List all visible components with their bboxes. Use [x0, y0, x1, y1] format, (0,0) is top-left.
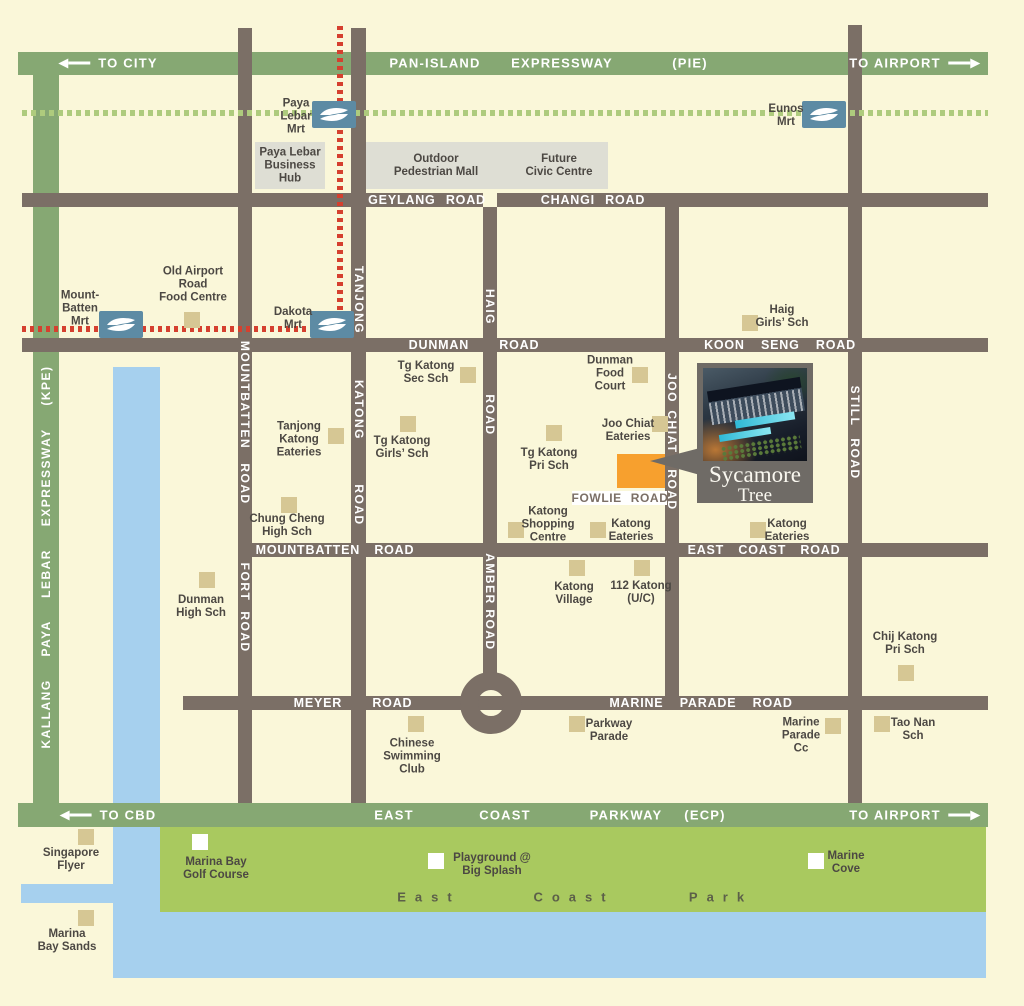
civic-centre-label: Future Civic Centre: [525, 153, 592, 179]
mountbatten-v-word1: MOUNTBATTEN: [238, 341, 252, 449]
parkway-parade-label: Parkway Parade: [586, 718, 633, 744]
pie-abbr-label: (PIE): [672, 56, 708, 71]
marine-cove-marker: [808, 853, 824, 869]
katong-eateries-west-marker: [590, 522, 606, 538]
mrt-circle-line-vertical: [337, 26, 343, 331]
tanjong-katong-word3: ROAD: [352, 484, 366, 525]
marine-parade-road-label: MARINE PARADE ROAD: [609, 696, 792, 710]
meyer-road-label: MEYER ROAD: [294, 696, 413, 710]
amber-word2: ROAD: [483, 609, 497, 650]
ecp-to-cbd-label: TO CBD: [60, 808, 157, 823]
tg-katong-pri-sch-label: Tg Katong Pri Sch: [521, 447, 578, 473]
tanjong-katong-eateries-marker: [328, 428, 344, 444]
pie-to-city-label: TO CITY: [58, 56, 157, 71]
sycamore-tree-name: Sycamore Tree: [697, 463, 813, 505]
ecp-coast-label: COAST: [479, 808, 531, 823]
katong-eateries-west-label: Katong Eateries: [609, 518, 654, 544]
chij-katong-pri-sch-marker: [898, 665, 914, 681]
dunman-road-label: DUNMAN ROAD: [409, 338, 540, 352]
chung-cheng-high-sch-label: Chung Cheng High Sch: [249, 513, 324, 539]
haig-girls-sch-label: Haig Girls’ Sch: [755, 304, 808, 330]
mountbatten-mrt-icon: [99, 311, 143, 338]
marina-bay-sands-label: Marina Bay Sands: [38, 928, 97, 954]
dakota-mrt-label: Dakota Mrt: [274, 306, 312, 332]
playground-big-splash-label: Playground @ Big Splash: [453, 852, 531, 878]
pie-to-airport-label: TO AIRPORT: [849, 56, 980, 71]
chinese-swimming-club-label: Chinese Swimming Club: [383, 738, 441, 777]
ecp-to-airport-label: TO AIRPORT: [849, 808, 980, 823]
park-name-park: Park: [689, 890, 753, 905]
marine-parade-cc-marker: [825, 718, 841, 734]
dunman-high-sch-label: Dunman High Sch: [176, 594, 226, 620]
chinese-swimming-club-marker: [408, 716, 424, 732]
tanjong-katong-word1: TANJONG: [352, 266, 366, 334]
eunos-mrt-icon: [802, 101, 846, 128]
sycamore-tree-name-line2: Tree: [697, 486, 813, 505]
paya-lebar-mrt-label: Paya Lebar Mrt: [280, 98, 311, 137]
katong-village-label: Katong Village: [554, 581, 594, 607]
arrow-left-icon: [58, 58, 90, 68]
pie-name-label: PAN-ISLAND: [389, 56, 480, 71]
katong-eateries-east-marker: [750, 522, 766, 538]
arrow-right-icon: [949, 58, 981, 68]
tao-nan-sch-marker: [874, 716, 890, 732]
parkway-parade-marker: [569, 716, 585, 732]
sea-water: [113, 912, 986, 978]
to-city-text: TO CITY: [98, 56, 157, 71]
joo-chiat-eateries-label: Joo Chiat Eateries: [602, 418, 654, 444]
tg-katong-girls-sch-label: Tg Katong Girls’ Sch: [374, 435, 431, 461]
to-airport-text: TO AIRPORT: [849, 56, 940, 71]
tanjong-katong-word2: KATONG: [352, 380, 366, 440]
mountbatten-mrt-label: Mount- Batten Mrt: [61, 290, 99, 329]
park-name-east: East: [397, 890, 460, 905]
paya-lebar-mrt-icon: [312, 101, 356, 128]
katong-eateries-east-label: Katong Eateries: [765, 518, 810, 544]
mountbatten-road-label: MOUNTBATTEN ROAD: [256, 543, 415, 557]
fowlie-road-label: FOWLIE ROAD: [572, 491, 669, 505]
marina-bay-golf-marker: [192, 834, 208, 850]
sycamore-tree-name-line1: Sycamore: [697, 463, 813, 486]
fort-word1: FORT: [238, 563, 252, 602]
business-hub-label: Paya Lebar Business Hub: [259, 147, 320, 186]
chij-katong-pri-sch-label: Chij Katong Pri Sch: [873, 631, 938, 657]
amber-word1: AMBER: [483, 553, 497, 605]
haig-word1: HAIG: [483, 289, 497, 325]
joo-chiat-word1: JOO: [665, 373, 679, 403]
marina-channel: [21, 884, 113, 903]
singapore-flyer-label: Singapore Flyer: [43, 847, 99, 873]
kpe-name-label: KALLANG PAYA LEBAR EXPRESSWAY (KPE): [39, 366, 53, 749]
still-word2: ROAD: [848, 438, 862, 479]
sycamore-tree-building-photo: [703, 368, 807, 461]
dunman-food-court-label: Dunman Food Court: [587, 355, 633, 394]
tanjong-katong-eateries-label: Tanjong Katong Eateries: [277, 421, 322, 460]
arrow-left-icon: [60, 810, 92, 820]
arrow-right-icon: [949, 810, 981, 820]
eunos-mrt-label: Eunos Mrt: [768, 103, 803, 129]
dunman-high-sch-marker: [199, 572, 215, 588]
haig-word2: ROAD: [483, 394, 497, 435]
playground-big-splash-marker: [428, 853, 444, 869]
pie-expressway-road: [18, 52, 988, 75]
dakota-mrt-icon: [310, 311, 354, 338]
tg-katong-sec-sch-marker: [460, 367, 476, 383]
river-strip: [113, 367, 160, 978]
joo-chiat-word3: ROAD: [665, 469, 679, 510]
marine-parade-cc-label: Marine Parade Cc: [782, 717, 820, 756]
changi-road-label: CHANGI ROAD: [541, 193, 645, 207]
geylang-changi-road: [22, 193, 988, 207]
fort-word2: ROAD: [238, 611, 252, 652]
to-cbd-text: TO CBD: [100, 808, 157, 823]
still-word1: STILL: [848, 386, 862, 427]
tg-katong-girls-sch-marker: [400, 416, 416, 432]
sycamore-tree-location-map: TO CITY PAN-ISLAND EXPRESSWAY (PIE) TO A…: [0, 0, 1024, 1006]
katong-shopping-centre-label: Katong Shopping Centre: [521, 506, 574, 545]
dunman-food-court-marker: [632, 367, 648, 383]
old-airport-food-centre-label: Old Airport Road Food Centre: [159, 266, 227, 305]
tg-katong-pri-sch-marker: [546, 425, 562, 441]
ecp-east-label: EAST: [374, 808, 413, 823]
callout-pointer-icon: [650, 448, 700, 475]
112-katong-marker: [634, 560, 650, 576]
amber-meyer-roundabout: [460, 672, 522, 734]
ecp-parkway-label: PARKWAY: [590, 808, 663, 823]
katong-village-marker: [569, 560, 585, 576]
marina-bay-sands-marker: [78, 910, 94, 926]
sycamore-tree-callout: Sycamore Tree: [697, 363, 813, 503]
chung-cheng-high-sch-marker: [281, 497, 297, 513]
park-name-coast: Coast: [533, 890, 614, 905]
koon-seng-road-label: KOON SENG ROAD: [704, 338, 856, 352]
marina-bay-golf-label: Marina Bay Golf Course: [183, 856, 249, 882]
112-katong-label: 112 Katong (U/C): [610, 580, 671, 606]
old-airport-food-centre-marker: [184, 312, 200, 328]
ecp-abbr-label: (ECP): [684, 808, 725, 823]
joo-chiat-eateries-marker: [652, 416, 668, 432]
east-coast-road-label: EAST COAST ROAD: [688, 543, 841, 557]
tg-katong-sec-sch-label: Tg Katong Sec Sch: [398, 360, 455, 386]
mountbatten-v-word2: ROAD: [238, 463, 252, 504]
tao-nan-sch-label: Tao Nan Sch: [891, 717, 936, 743]
singapore-flyer-marker: [78, 829, 94, 845]
marine-cove-label: Marine Cove: [827, 850, 864, 876]
to-airport-text: TO AIRPORT: [849, 808, 940, 823]
pedestrian-mall-label: Outdoor Pedestrian Mall: [394, 153, 478, 179]
geylang-road-label: GEYLANG ROAD: [368, 193, 486, 207]
pie-name2-label: EXPRESSWAY: [511, 56, 613, 71]
